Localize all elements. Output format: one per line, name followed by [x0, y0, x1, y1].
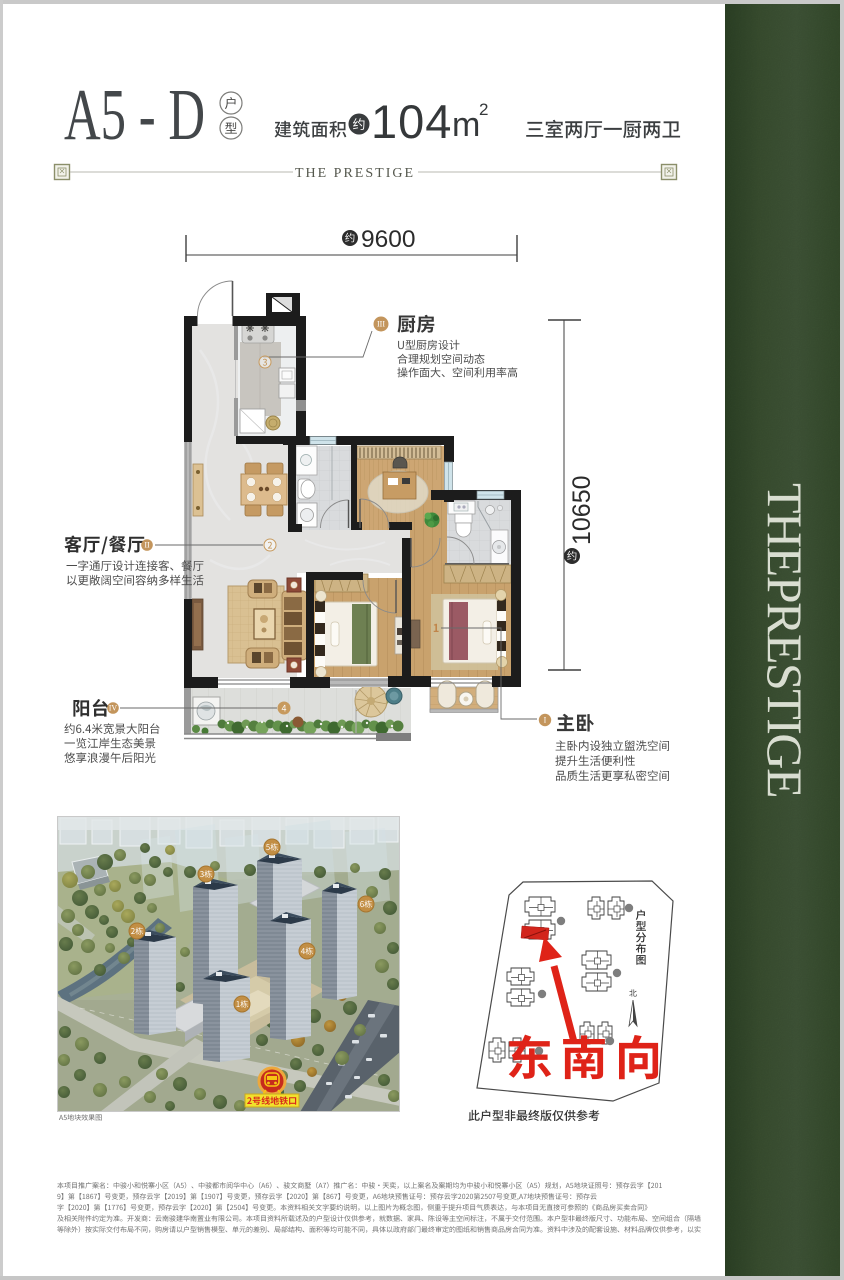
- svg-text:m: m: [452, 106, 480, 144]
- svg-text:II: II: [144, 541, 150, 550]
- svg-text:THEPRESTIGE: THEPRESTIGE: [757, 483, 813, 797]
- svg-text:9600: 9600: [361, 226, 416, 253]
- svg-text:10650: 10650: [568, 475, 596, 545]
- svg-text:THE PRESTIGE: THE PRESTIGE: [295, 166, 415, 181]
- svg-text:I: I: [544, 716, 547, 725]
- svg-text:104: 104: [371, 95, 452, 148]
- svg-text:III: III: [377, 320, 385, 329]
- svg-text:2: 2: [479, 100, 488, 119]
- svg-text:IV: IV: [109, 704, 118, 713]
